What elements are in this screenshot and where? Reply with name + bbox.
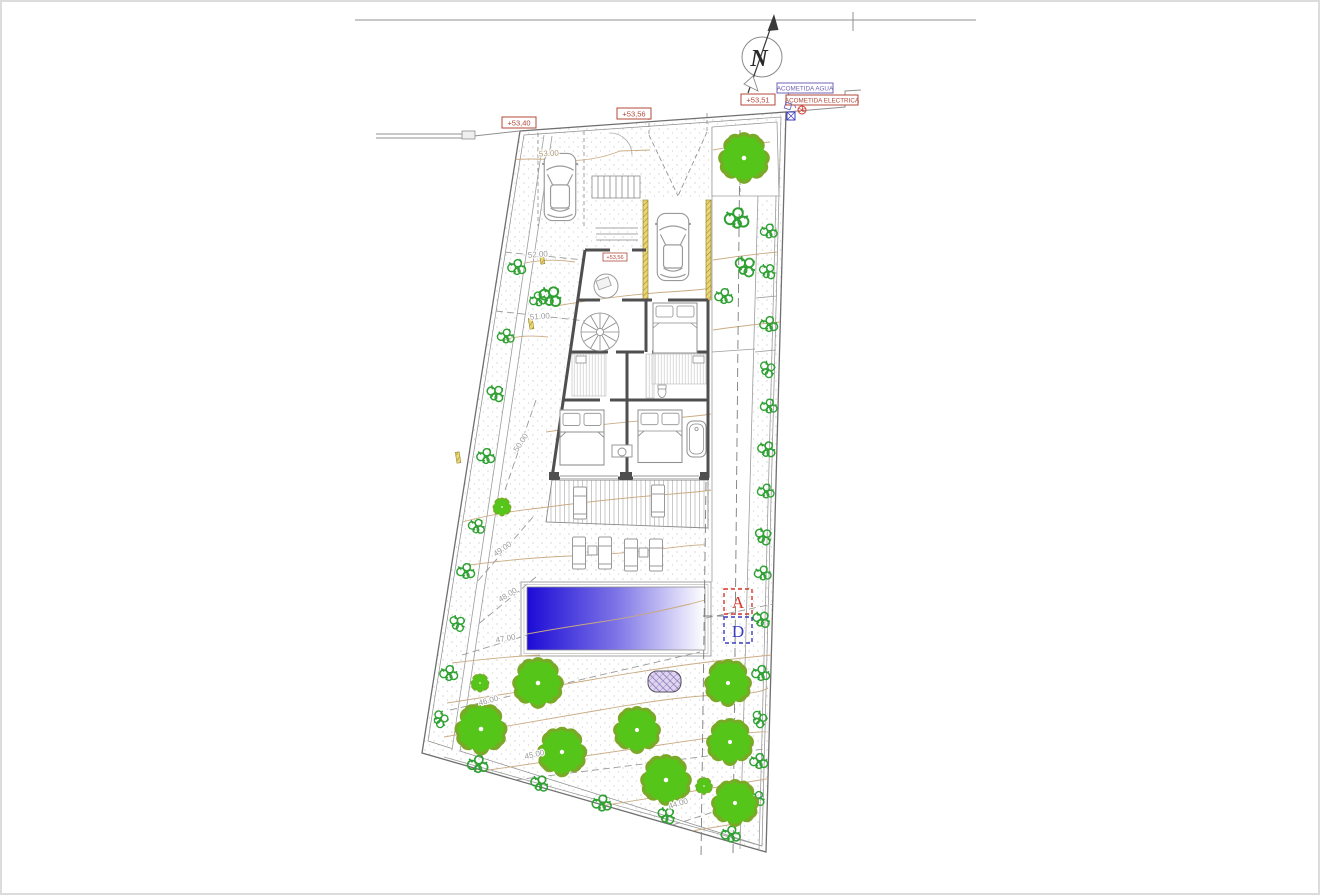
side-table-2	[639, 548, 648, 557]
level-street-left: +53,40	[507, 119, 530, 128]
side-table-1	[588, 546, 597, 555]
deck-lounger-1	[574, 487, 587, 519]
north-letter: N	[749, 46, 769, 72]
spiral-staircase	[581, 313, 619, 351]
site-plan-drawing: 53.00 52.00 51.00 50.00 49.00 48.00 47.0…	[0, 0, 1320, 895]
utility-annotations: ACOMETIDA AGUA ACOMETIDA ELECTRICA	[777, 83, 860, 120]
contour-label-51: 51.00	[530, 311, 551, 321]
section-letter-a: A	[732, 593, 745, 612]
bathtub	[687, 421, 706, 457]
car-garage	[655, 213, 691, 280]
paved-feature	[648, 671, 681, 692]
car-street	[542, 153, 578, 220]
swimming-pool	[524, 585, 708, 654]
section-letter-d: D	[732, 622, 744, 641]
level-street-center: +53,56	[622, 110, 645, 119]
bed-2	[560, 410, 604, 465]
level-entry: +53,56	[606, 255, 623, 261]
site-plan-sheet: 53.00 52.00 51.00 50.00 49.00 48.00 47.0…	[0, 0, 1320, 895]
utility-electric-label: ACOMETIDA ELECTRICA	[785, 98, 860, 105]
bed-3	[638, 410, 682, 463]
contour-label-53: 53.00	[539, 148, 560, 158]
north-arrowhead	[768, 14, 779, 31]
entry-table	[594, 274, 618, 298]
north-arrow: N	[742, 14, 782, 93]
level-street-right: +53,51	[746, 96, 769, 105]
street-lines	[355, 12, 976, 139]
utility-water-label: ACOMETIDA AGUA	[777, 86, 834, 93]
deck-lounger-2	[652, 485, 665, 517]
contour-label-52: 52.00	[528, 249, 549, 259]
desk	[612, 445, 632, 457]
garage-wall-right	[706, 200, 711, 300]
bed-1	[653, 303, 697, 353]
